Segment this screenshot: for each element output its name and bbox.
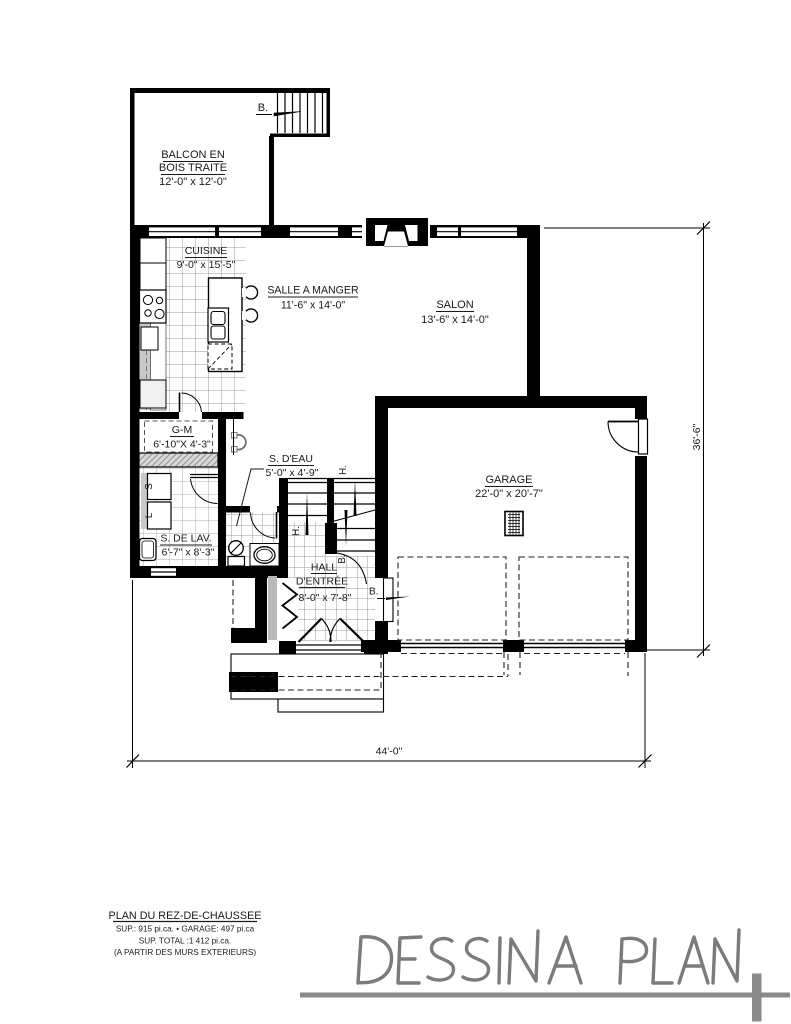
- svg-text:8'-0" x 7'-8": 8'-0" x 7'-8": [299, 592, 352, 604]
- svg-text:6'-7" x 8'-3": 6'-7" x 8'-3": [162, 547, 215, 559]
- svg-text:5'-0" x 4'-9": 5'-0" x 4'-9": [266, 467, 319, 479]
- svg-text:SALLE A MANGER: SALLE A MANGER: [267, 285, 359, 297]
- svg-text:44'-0": 44'-0": [376, 746, 403, 758]
- svg-text:B.: B.: [258, 102, 268, 114]
- svg-text:S. D'EAU: S. D'EAU: [269, 453, 313, 465]
- svg-text:(A PARTIR DES MURS EXTERIEURS): (A PARTIR DES MURS EXTERIEURS): [114, 948, 256, 957]
- svg-text:SUP.: 915 pi.ca. • GARAGE: 49: SUP.: 915 pi.ca. • GARAGE: 497 pi.ca: [116, 925, 255, 934]
- svg-text:22'-0" x 20'-7": 22'-0" x 20'-7": [475, 488, 543, 500]
- svg-text:SUP. TOTAL :1 412 pi.ca.: SUP. TOTAL :1 412 pi.ca.: [139, 937, 231, 946]
- svg-text:BOIS TRAITE: BOIS TRAITE: [159, 162, 227, 174]
- svg-text:D'ENTRÉE: D'ENTRÉE: [296, 575, 348, 588]
- svg-text:S: S: [144, 483, 155, 490]
- svg-text:13'-6" x 14'-0": 13'-6" x 14'-0": [421, 314, 489, 326]
- svg-text:HALL: HALL: [311, 562, 337, 574]
- svg-text:12'-0" x 12'-0": 12'-0" x 12'-0": [159, 176, 227, 188]
- svg-text:9'-0" x 15'-5": 9'-0" x 15'-5": [177, 259, 236, 271]
- svg-text:11'-6" x 14'-0": 11'-6" x 14'-0": [281, 300, 346, 312]
- svg-text:BALCON EN: BALCON EN: [161, 149, 225, 161]
- svg-text:PLAN DU REZ-DE-CHAUSSEE: PLAN DU REZ-DE-CHAUSSEE: [109, 910, 262, 922]
- svg-text:H.: H.: [291, 526, 302, 536]
- svg-text:CUISINE: CUISINE: [185, 245, 228, 257]
- svg-text:6'-10"X 4'-3": 6'-10"X 4'-3": [153, 439, 211, 451]
- svg-text:S. DE LAV.: S. DE LAV.: [160, 533, 211, 545]
- svg-text:G-M: G-M: [172, 424, 192, 436]
- svg-text:L: L: [144, 512, 155, 518]
- svg-text:SALON: SALON: [436, 299, 473, 311]
- svg-text:H.: H.: [338, 465, 349, 475]
- svg-text:36'-6": 36'-6": [691, 423, 703, 450]
- svg-text:B.: B.: [369, 587, 378, 598]
- svg-text:GARAGE: GARAGE: [485, 474, 532, 486]
